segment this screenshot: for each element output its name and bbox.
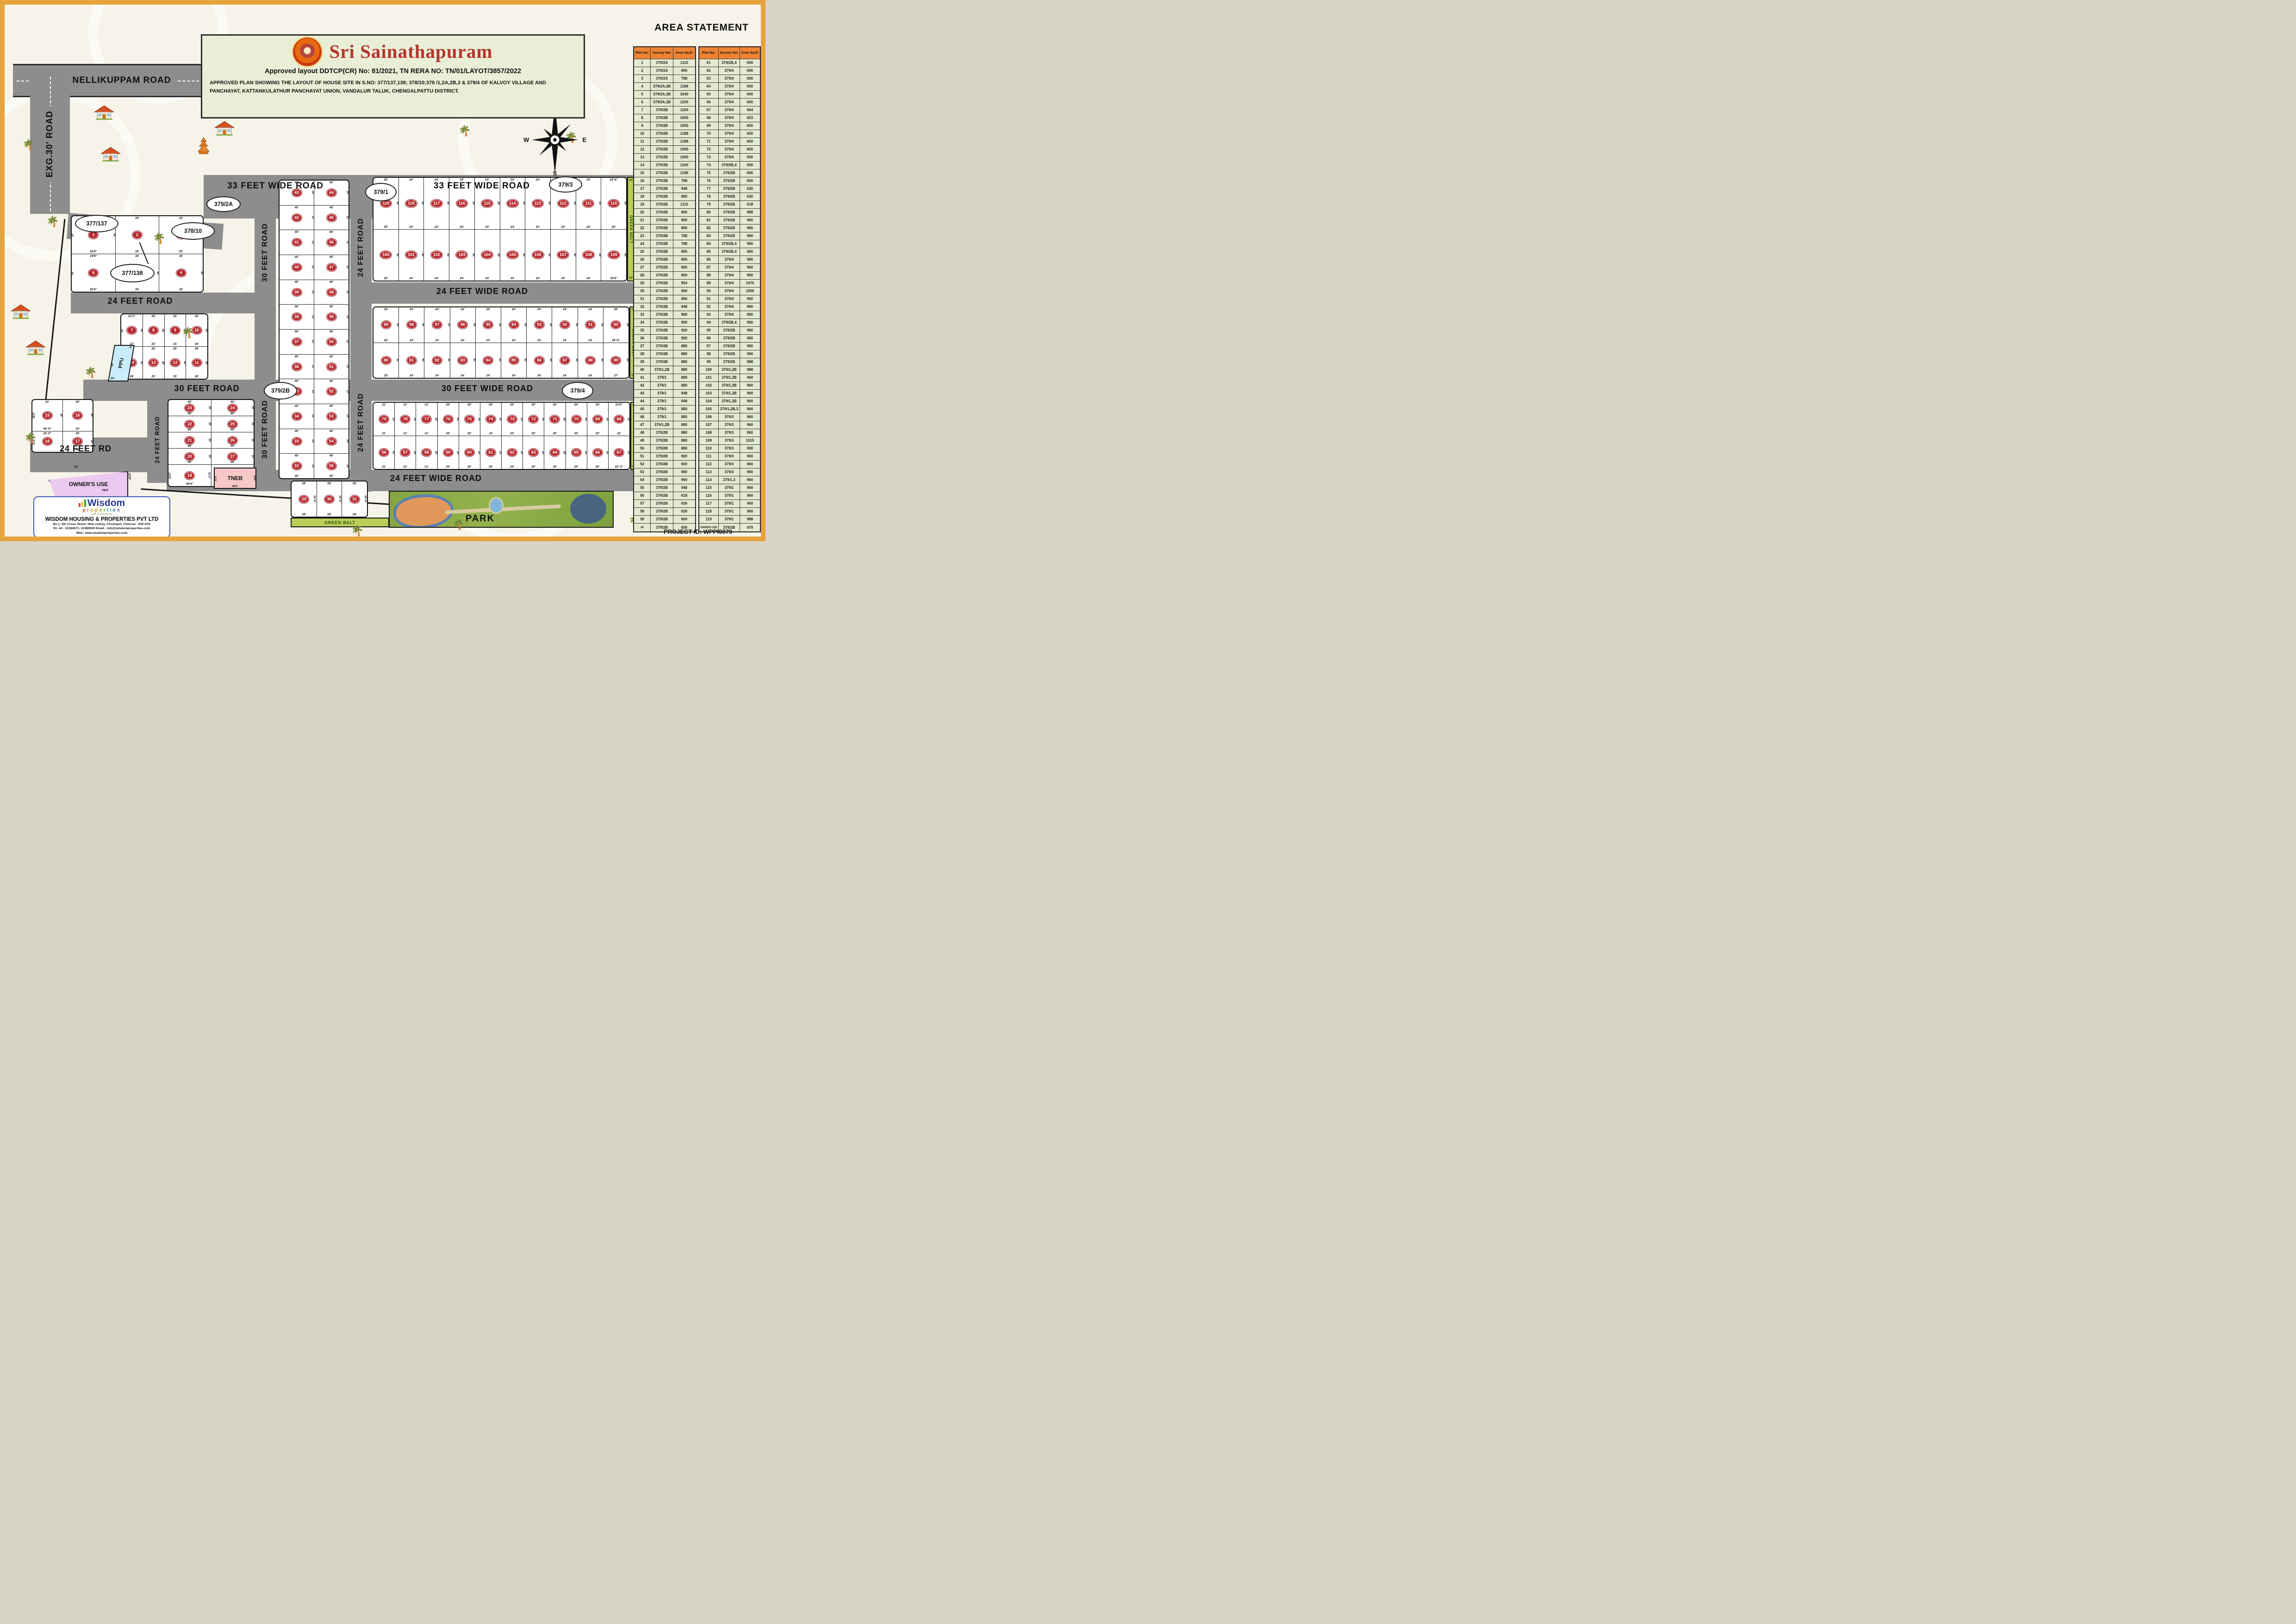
plot-number-badge: 107 xyxy=(557,250,569,259)
approval-line: Approved layout DDTCP(CR) No: 81/2021, T… xyxy=(265,68,521,75)
tneb-area: TNEB 11'3" 40'9" 18'6" xyxy=(214,468,256,489)
plot-number-badge: 86 xyxy=(534,356,545,365)
plot-63: 6320'30' xyxy=(523,436,544,469)
plot-78: 21'7821'30' xyxy=(394,403,416,436)
plot-number-badge: 77 xyxy=(421,415,432,424)
table-row: 97379/2B960 xyxy=(699,343,761,350)
table-row: 115379/1960 xyxy=(699,484,761,492)
plot-75: 20'7520'30' xyxy=(459,403,480,436)
table-row: 27379/2B800 xyxy=(634,264,696,272)
plot-number-badge: 96 xyxy=(457,320,468,329)
plot-8: 25'825'40' xyxy=(143,314,164,346)
plot-62: 6220'30' xyxy=(501,436,523,469)
green-belt-width: 10' xyxy=(629,276,633,280)
table-row: 98379/2B960 xyxy=(699,350,761,358)
plot-97: 24'9724'40' xyxy=(424,307,449,343)
house-icon xyxy=(93,105,115,120)
table-row: 17379/2B948 xyxy=(634,185,696,193)
house-icon xyxy=(25,340,46,356)
table-row: 117379/1960 xyxy=(699,500,761,508)
plot-86: 8624'40' xyxy=(526,343,552,378)
plot-number-badge: 101 xyxy=(405,250,417,259)
plot-number-badge: 11 xyxy=(192,358,202,367)
table-row: 119379/1988 xyxy=(699,516,761,524)
table-row: 20379/2B800 xyxy=(634,209,696,217)
table-row: 28379/2B800 xyxy=(634,272,696,280)
plot-number-badge: 34 xyxy=(292,412,302,421)
plot-number-badge: 75 xyxy=(464,415,475,424)
plot-number-badge: 91 xyxy=(585,320,596,329)
plot-13: 25'1325'40' xyxy=(143,347,164,379)
plot-number-badge: 99 xyxy=(381,320,392,329)
plot-number-badge: 49 xyxy=(326,312,337,321)
plot-number-badge: 117 xyxy=(430,199,443,208)
table-row: 16379/2B788 xyxy=(634,177,696,185)
logo-wisdom: Wisdom xyxy=(87,499,125,508)
table-row: 42379/1880 xyxy=(634,382,696,390)
table-row: 55379/2B948 xyxy=(634,484,696,492)
plot-number-badge: 92 xyxy=(560,320,570,329)
plot-22: 2240'20' xyxy=(168,416,211,432)
plot-number-badge: 109 xyxy=(608,250,620,259)
plot-number-badge: 7 xyxy=(126,326,137,335)
plot-number-badge: 60 xyxy=(464,448,475,457)
table-row: 102379/1,2B960 xyxy=(699,382,761,390)
table-row: 68379/4653 xyxy=(699,114,761,122)
table-row: 69379/4600 xyxy=(699,122,761,130)
plot-52: 40'5223' xyxy=(314,379,348,404)
logo-tagline: sign of prosperity xyxy=(91,513,112,516)
plot-number-badge: 97 xyxy=(432,320,442,329)
table-row: 57379/2B630 xyxy=(634,500,696,508)
table-row: 36379/2B920 xyxy=(634,335,696,343)
plot-number-badge: 116 xyxy=(456,199,468,208)
table-row: 2379/2A800 xyxy=(634,67,696,75)
plot-110: 24'-6"11025'40' xyxy=(601,178,626,229)
plot-number-badge: 21 xyxy=(184,436,195,445)
plot-number-badge: 65 xyxy=(571,448,582,457)
plot-103: 10324'40' xyxy=(449,230,474,281)
table-row: 47379/1,2B880 xyxy=(634,421,696,429)
palm-tree-icon: 🌴 xyxy=(22,140,35,150)
plot-number-badge: 78 xyxy=(400,415,411,424)
table-row: 21379/2B800 xyxy=(634,217,696,225)
temple-icon xyxy=(197,137,210,155)
plot-48: 40'4822' xyxy=(314,280,348,305)
plot-26: 2640'20' xyxy=(211,432,254,448)
plot-25: 2540'20' xyxy=(211,416,254,432)
table-row: 11379/2B1188 xyxy=(634,138,696,146)
plot-55: 40'5540'24' xyxy=(314,454,348,478)
table-row: 73379/4600 xyxy=(699,154,761,162)
plot-number-badge: 87 xyxy=(560,356,570,365)
plot-number-badge: 25 xyxy=(227,420,238,429)
logo-properties: properties xyxy=(82,507,121,513)
table-row: 45379/1880 xyxy=(634,406,696,413)
palm-tree-icon: 🌴 xyxy=(24,433,37,443)
plot-number-badge: 85 xyxy=(509,356,519,365)
plot-38: 40'3822' xyxy=(280,305,314,329)
plot-number-badge: 110 xyxy=(608,199,620,208)
plot-number-badge: 106 xyxy=(532,250,544,259)
dim-label: 8' xyxy=(130,346,132,349)
table-row: 32379/2B948 xyxy=(634,303,696,311)
plot-number-badge: 66 xyxy=(592,448,603,457)
table-row: 83379/2B960 xyxy=(699,232,761,240)
plot-4: 30'430'40' xyxy=(159,254,203,292)
plot-number-badge: 93 xyxy=(534,320,545,329)
plot-60: 6020'30' xyxy=(459,436,480,469)
plot-number-badge: 89 xyxy=(610,356,621,365)
plot-number-badge: 19 xyxy=(184,471,195,480)
plot-65: 6520'30' xyxy=(566,436,587,469)
plot-95: 24'9524'40' xyxy=(475,307,501,343)
table-row: 25379/2B800 xyxy=(634,248,696,256)
table-row: 61379/2B,4600 xyxy=(699,59,761,67)
table-row: 46379/1880 xyxy=(634,413,696,421)
plot-number-badge: 114 xyxy=(506,199,519,208)
plot-number-badge: 2 xyxy=(132,231,143,239)
road-label-24ft: 24 FEET ROAD xyxy=(147,399,168,481)
table-row: 116379/1960 xyxy=(699,492,761,500)
plot-number-badge: 81 xyxy=(406,356,417,365)
plot-104: 10424'40' xyxy=(474,230,500,281)
plot-number-badge: 30 xyxy=(324,495,335,504)
table-row: 33379/2B960 xyxy=(634,311,696,319)
sai-baba-logo-icon xyxy=(293,37,322,66)
plot-number-badge: 20 xyxy=(184,452,195,461)
dim-label: 77' xyxy=(74,466,78,469)
table-row: 52379/2B920 xyxy=(634,461,696,468)
plot-number-badge: 41 xyxy=(292,238,302,247)
plot-number-badge: 84 xyxy=(483,356,493,365)
project-id: PROJECT ID: WPPI0079 xyxy=(636,528,760,535)
plot-106: 10624'40' xyxy=(525,230,550,281)
table-row: 3379/2A788 xyxy=(634,75,696,83)
plot-number-badge: 13 xyxy=(148,358,159,367)
plot-31: 28'3128'34'-6" xyxy=(342,481,367,517)
plot-number-badge: 82 xyxy=(432,356,442,365)
green-belt-width: 10' xyxy=(629,179,633,182)
plot-64: 6420'30' xyxy=(544,436,565,469)
plan-description: APPROVED PLAN SHOWING THE LAYOUT OF HOUS… xyxy=(210,79,576,95)
table-header: Plot No: xyxy=(634,47,651,59)
plot-number-badge: 94 xyxy=(509,320,519,329)
table-row: 114379/1,3960 xyxy=(699,476,761,484)
survey-oval-379-2a: 379/2A xyxy=(206,196,241,212)
plot-number-badge: 4 xyxy=(176,269,187,277)
table-row: 76379/2B600 xyxy=(699,177,761,185)
plot-84: 8424'40' xyxy=(475,343,501,378)
palm-tree-icon: 🌴 xyxy=(181,328,194,338)
plot-number-badge: 98 xyxy=(406,320,417,329)
table-row: 113379/3960 xyxy=(699,468,761,476)
plot-number-badge: 37 xyxy=(292,337,302,346)
plot-number-badge: 9 xyxy=(170,326,180,335)
table-row: 80379/2B988 xyxy=(699,209,761,217)
survey-oval-379-2b: 379/2B xyxy=(264,382,297,400)
table-row: 70379/4600 xyxy=(699,130,761,138)
plot-number-badge: 68 xyxy=(614,415,624,424)
plot-42: 40'4222' xyxy=(280,206,314,230)
plot-number-badge: 113 xyxy=(532,199,544,208)
table-row: 23379/2B788 xyxy=(634,232,696,240)
company-website: Web: www.wisdomproperties.com xyxy=(76,531,127,535)
road-label-33ft: 33 FEET WIDE ROAD xyxy=(416,181,548,191)
table-row: 66379/4600 xyxy=(699,99,761,106)
table-row: 84379/2B,4960 xyxy=(699,240,761,248)
plot-80: 8025'40' xyxy=(373,343,398,378)
plot-number-badge: 100 xyxy=(380,250,392,259)
table-row: 10379/2B1188 xyxy=(634,130,696,138)
table-header: Survey No: xyxy=(651,47,673,59)
plot-83: 8324'40' xyxy=(450,343,475,378)
table-row: 44379/1948 xyxy=(634,398,696,406)
plot-number-badge: 95 xyxy=(483,320,493,329)
table-row: 43379/1948 xyxy=(634,390,696,398)
table-row: 5379/2A,2B1040 xyxy=(634,91,696,99)
plot-88: 8824'40' xyxy=(578,343,603,378)
green-belt-strip-bottom: GREEN BELT xyxy=(291,518,389,527)
road-label-24ft-wide: 24 FEET WIDE ROAD xyxy=(408,287,556,296)
table-row: 40379/1,2B880 xyxy=(634,366,696,374)
table-row: 39379/2B880 xyxy=(634,358,696,366)
table-row: 12379/2B1000 xyxy=(634,146,696,154)
table-row: 103379/1,2B960 xyxy=(699,390,761,398)
plot-block-80-99: 25'9925'40'24'9824'40'24'9724'40'24'9624… xyxy=(373,306,629,379)
plot-number-badge: 6 xyxy=(88,269,99,277)
plot-number-badge: 61 xyxy=(485,448,496,457)
plot-number-badge: 88 xyxy=(585,356,596,365)
area-table-left: Plot No:Survey No:Area Sq.ft:1379/2A1115… xyxy=(633,46,696,532)
road-label-30ft: 30 FEET ROAD xyxy=(154,384,260,394)
survey-oval-377-138: 377/138 xyxy=(110,264,155,282)
plot-number-badge: 52 xyxy=(326,387,337,396)
plot-99: 25'9925'40' xyxy=(373,307,398,343)
compass-south: S xyxy=(553,170,557,177)
plot-66: 6620'30' xyxy=(587,436,608,469)
dim-label: 40'9" xyxy=(215,485,255,488)
table-row: 37379/2B880 xyxy=(634,343,696,350)
exg-30ft-road: EXG.30' ROAD xyxy=(30,74,70,214)
table-row: 53379/2B960 xyxy=(634,468,696,476)
plot-number-badge: 29 xyxy=(299,495,309,504)
plot-68: 21'6"6822'30' xyxy=(608,403,629,436)
green-belt-label: GREEN BELT xyxy=(629,215,633,244)
palm-tree-icon: 🌴 xyxy=(84,368,97,378)
plot-number-badge: 104 xyxy=(481,250,493,259)
plot-71: 20'7120'30' xyxy=(544,403,565,436)
plot-number-badge: 33 xyxy=(292,437,302,446)
table-row: 14379/2B1160 xyxy=(634,162,696,169)
road-label-33ft: 33 FEET WIDE ROAD xyxy=(215,181,336,191)
table-row: 104379/1,2B960 xyxy=(699,398,761,406)
table-row: 41379/1880 xyxy=(634,374,696,382)
table-row: 118379/1960 xyxy=(699,508,761,516)
table-row: 92379/4960 xyxy=(699,303,761,311)
palm-tree-icon: 🌴 xyxy=(458,126,471,136)
plot-number-badge: 112 xyxy=(557,199,570,208)
plot-number-badge: 31 xyxy=(349,495,360,504)
table-row: 110379/3990 xyxy=(699,445,761,453)
plot-53: 40'5324' xyxy=(314,404,348,429)
palm-tree-icon: 🌴 xyxy=(452,519,464,530)
table-row: 4379/2A,2B1188 xyxy=(634,83,696,91)
playground-icon xyxy=(570,494,606,524)
plot-number-badge: 76 xyxy=(443,415,454,424)
plot-number-badge: 47 xyxy=(326,263,337,272)
table-row: 112379/3960 xyxy=(699,461,761,468)
developer-logo-box: Wisdom properties sign of prosperity WIS… xyxy=(33,496,170,538)
table-row: 106379/3960 xyxy=(699,413,761,421)
table-row: 31379/2B966 xyxy=(634,295,696,303)
table-row: 29379/2B954 xyxy=(634,280,696,287)
plot-91: 24'9124'40' xyxy=(578,307,603,343)
table-row: 56379/2B618 xyxy=(634,492,696,500)
table-row: 7379/2B1165 xyxy=(634,106,696,114)
tneb-label: TNEB xyxy=(228,475,243,481)
pond-icon xyxy=(489,497,504,514)
plot-number-badge: 103 xyxy=(455,250,468,259)
plot-19: 1940'9"31'3"24'6" xyxy=(168,465,211,486)
table-row: 50379/2B880 xyxy=(634,445,696,453)
table-row: 63379/4600 xyxy=(699,75,761,83)
plot-number-badge: 80 xyxy=(381,356,392,365)
plot-61: 6120'30' xyxy=(480,436,501,469)
table-row: 79379/2B618 xyxy=(699,201,761,209)
playground-icon xyxy=(393,494,454,528)
plot-101: 10124'40' xyxy=(398,230,424,281)
table-row: 54379/2B960 xyxy=(634,476,696,484)
plot-45: 40'4522' xyxy=(314,206,348,230)
plot-number-badge: 53 xyxy=(326,412,337,421)
table-row: 8379/2B1000 xyxy=(634,114,696,122)
table-row: 95379/2B960 xyxy=(699,327,761,335)
table-row: 67379/4664 xyxy=(699,106,761,114)
dim-label: 43' xyxy=(111,362,114,366)
table-row: 90379/41050 xyxy=(699,287,761,295)
table-row: 18379/2B890 xyxy=(634,193,696,201)
area-statement-title: AREA STATEMENT xyxy=(642,22,761,33)
layout-plan-canvas: NELLIKUPPAM ROAD EXG.30' ROAD 33 FEET WI… xyxy=(0,0,765,541)
plot-number-badge: 59 xyxy=(443,448,454,457)
plot-108: 10824'40' xyxy=(576,230,601,281)
table-row: 22379/2B800 xyxy=(634,225,696,232)
palm-tree-icon: 🌴 xyxy=(46,217,59,227)
project-title: Sri Sainathapuram xyxy=(329,42,492,62)
plot-32: 40'3240'24' xyxy=(280,454,314,478)
plot-57: 5721'30' xyxy=(394,436,416,469)
survey-oval-378-10: 378/10 xyxy=(171,222,215,240)
table-row: 13379/2B1000 xyxy=(634,154,696,162)
plot-16: 20'1620'40' xyxy=(62,400,93,431)
table-row: 87379/4960 xyxy=(699,264,761,272)
green-belt-label: GREEN BELT xyxy=(324,520,355,525)
table-row: 82379/2B960 xyxy=(699,225,761,232)
owners-use-label: OWNER'S USE xyxy=(68,481,109,487)
plot-block-100-119: 25'11925'40'24'11824'40'24'11724'40'24'1… xyxy=(373,177,627,281)
palm-tree-icon: 🌴 xyxy=(351,526,363,536)
plot-number-badge: 50 xyxy=(326,337,337,346)
plot-58: 5821'30' xyxy=(416,436,437,469)
plot-77: 21'7721'30' xyxy=(416,403,437,436)
plot-37: 40'3722' xyxy=(280,330,314,354)
plot-59: 5920'30' xyxy=(437,436,459,469)
plot-72: 20'7220'30' xyxy=(523,403,544,436)
table-row: 51379/2B920 xyxy=(634,453,696,461)
plot-76: 20'7620'30' xyxy=(437,403,459,436)
plot-number-badge: 45 xyxy=(326,213,337,222)
table-row: 108379/3960 xyxy=(699,429,761,437)
plot-69: 20'6920'30' xyxy=(587,403,608,436)
table-row: 1379/2A1115 xyxy=(634,59,696,67)
plot-34: 40'3424' xyxy=(280,404,314,429)
road-label-24ft: 24 FEET ROAD xyxy=(78,296,203,306)
owners-use-area: OWNER'S USE xyxy=(49,471,128,498)
plot-number-badge: 42 xyxy=(292,213,302,222)
table-header: Plot No: xyxy=(699,47,719,59)
road-label-30ft-wide: 30 FEET WIDE ROAD xyxy=(416,384,559,394)
table-row: 49379/2B880 xyxy=(634,437,696,445)
table-row: 48379/2B880 xyxy=(634,429,696,437)
plot-7: 21'3"737'40'43' xyxy=(121,314,143,346)
table-row: 91379/4960 xyxy=(699,295,761,303)
plot-number-badge: 38 xyxy=(292,312,302,321)
plot-number-badge: 40 xyxy=(292,263,302,272)
plot-number-badge: 83 xyxy=(457,356,468,365)
road-label-24ft-rd: 24 FEET RD xyxy=(32,444,139,454)
plot-70: 20'7020'30' xyxy=(566,403,587,436)
table-row: 59379/2B600 xyxy=(634,516,696,524)
table-row: 19379/2B1115 xyxy=(634,201,696,209)
plot-94: 24'9424'40' xyxy=(501,307,526,343)
plot-number-badge: 32 xyxy=(292,462,302,470)
plot-number-badge: 39 xyxy=(292,288,302,297)
plot-number-badge: 58 xyxy=(421,448,432,457)
table-row: 77379/2B630 xyxy=(699,185,761,193)
plot-36: 40'3623' xyxy=(280,355,314,379)
plot-number-badge: 27 xyxy=(227,452,238,461)
table-row: 85379/2B,4960 xyxy=(699,248,761,256)
table-row: 65379/4600 xyxy=(699,91,761,99)
table-row: 9379/2B1000 xyxy=(634,122,696,130)
plot-number-badge: 46 xyxy=(326,238,337,247)
plot-54: 40'5424' xyxy=(314,429,348,454)
plot-47: 40'4722' xyxy=(314,255,348,280)
table-row: 81379/2B960 xyxy=(699,217,761,225)
plot-51: 40'5123' xyxy=(314,355,348,379)
logo-bars-icon xyxy=(79,500,86,507)
plot-11: 30'1130'40' xyxy=(186,347,207,379)
table-row: 101379/1,2B960 xyxy=(699,374,761,382)
table-row: 24379/2B788 xyxy=(634,240,696,248)
road-label-30ft: 30 FEET ROAD xyxy=(255,206,276,299)
plot-85: 8524'40' xyxy=(501,343,526,378)
plot-number-badge: 74 xyxy=(485,415,496,424)
table-row: 15379/2B1196 xyxy=(634,169,696,177)
plot-number-badge: 69 xyxy=(592,415,603,424)
road-label-24ft: 24 FEET ROAD xyxy=(350,199,372,296)
table-header: Area Sq.ft: xyxy=(740,47,760,59)
table-row: 72379/4600 xyxy=(699,146,761,154)
plot-15: 21'1546'-9"40'38'6" xyxy=(32,400,62,431)
plot-30: 28'3028'34'-6" xyxy=(317,481,342,517)
plot-49: 40'4922' xyxy=(314,305,348,329)
plot-number-badge: 79 xyxy=(379,415,389,424)
plot-105: 10524'40' xyxy=(500,230,525,281)
plot-number-badge: 102 xyxy=(430,250,443,259)
house-icon xyxy=(214,120,235,136)
